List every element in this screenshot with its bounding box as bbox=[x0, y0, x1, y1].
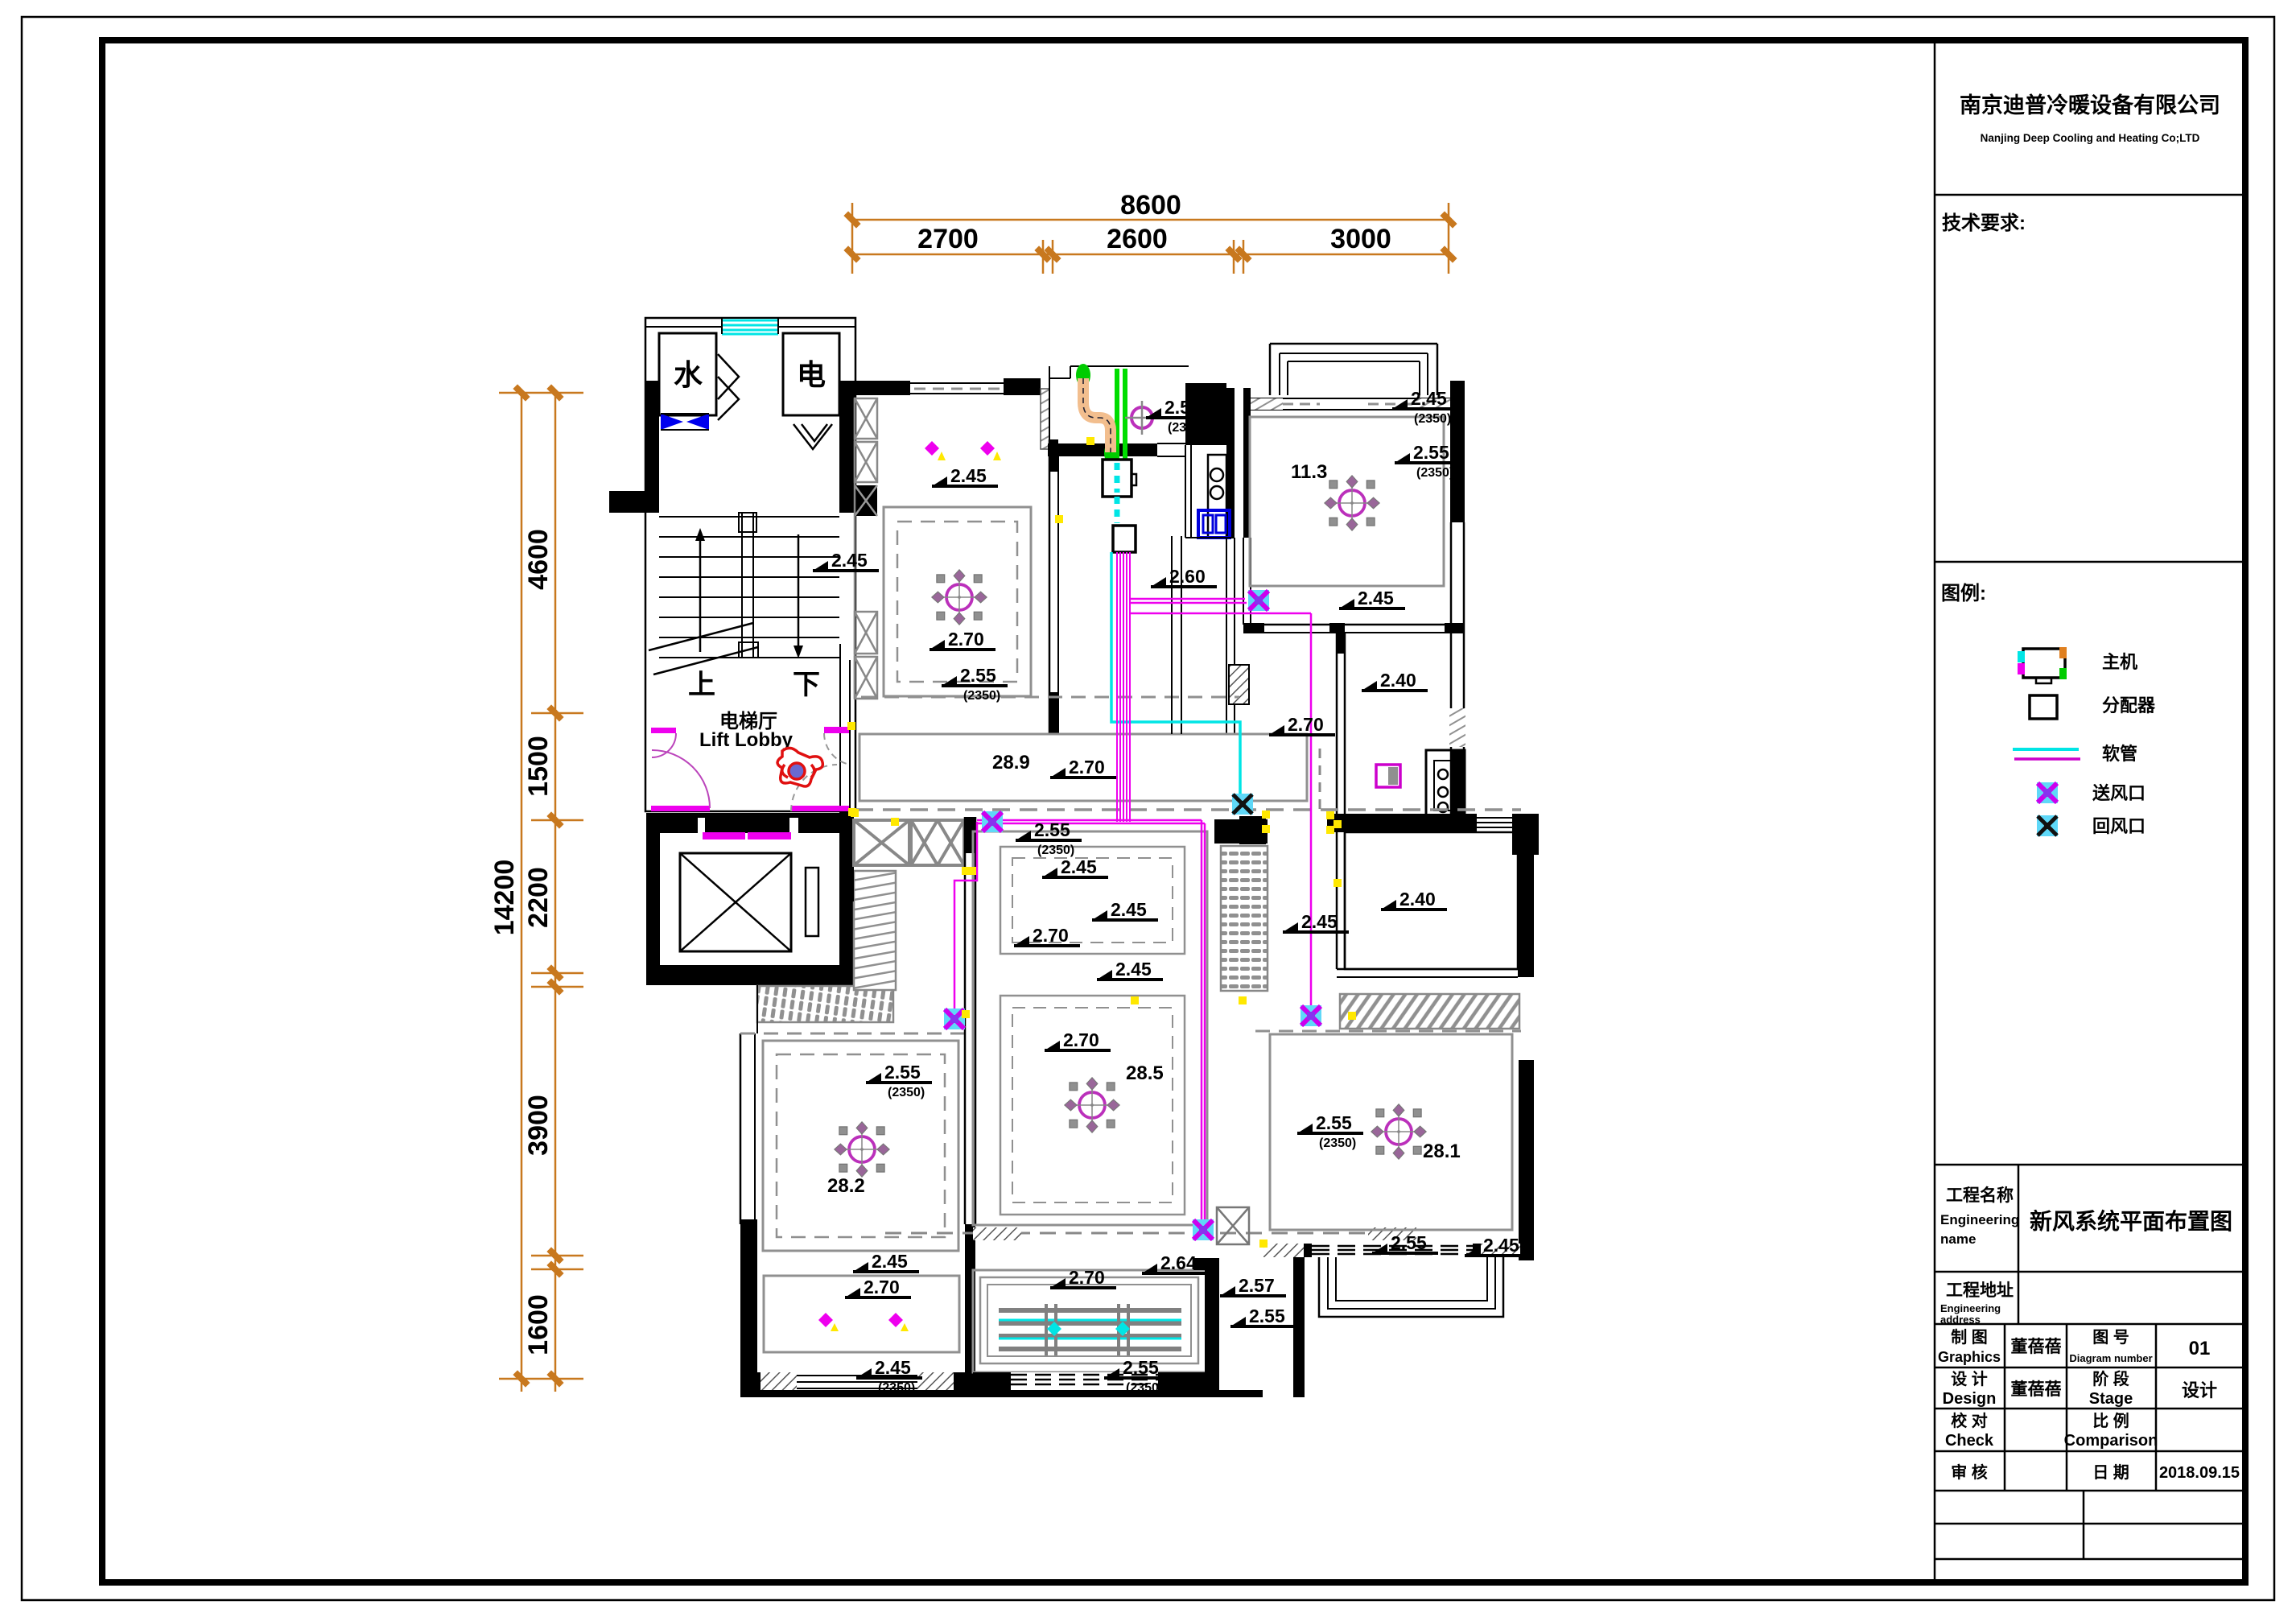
svg-text:董蓓蓓: 董蓓蓓 bbox=[2011, 1380, 2062, 1399]
svg-text:2.45: 2.45 bbox=[1115, 959, 1152, 980]
svg-text:2700: 2700 bbox=[917, 224, 979, 254]
svg-text:Engineering: Engineering bbox=[1940, 1302, 2001, 1314]
svg-text:日 期: 日 期 bbox=[2092, 1463, 2129, 1482]
svg-text:2.55: 2.55 bbox=[1123, 1357, 1159, 1378]
svg-text:2.45: 2.45 bbox=[1111, 899, 1147, 920]
svg-text:2.45: 2.45 bbox=[1483, 1235, 1519, 1256]
svg-text:3900: 3900 bbox=[523, 1095, 554, 1156]
svg-text:制 图: 制 图 bbox=[1951, 1328, 1988, 1347]
svg-text:2200: 2200 bbox=[523, 867, 554, 928]
svg-text:2.60: 2.60 bbox=[1169, 566, 1206, 587]
svg-text:新风系统平面布置图: 新风系统平面布置图 bbox=[2030, 1208, 2232, 1234]
svg-text:3000: 3000 bbox=[1330, 224, 1391, 254]
svg-text:(2350): (2350) bbox=[1126, 1381, 1163, 1395]
svg-text:2.55: 2.55 bbox=[960, 665, 996, 686]
svg-text:水: 水 bbox=[674, 358, 703, 391]
svg-text:28.2: 28.2 bbox=[827, 1175, 865, 1197]
svg-text:Design: Design bbox=[1943, 1390, 1997, 1408]
svg-text:(2350): (2350) bbox=[963, 689, 1000, 703]
svg-text:2.70: 2.70 bbox=[1033, 925, 1069, 946]
svg-text:审 核: 审 核 bbox=[1951, 1462, 1988, 1482]
svg-text:name: name bbox=[1940, 1231, 1976, 1247]
svg-text:(2350): (2350) bbox=[1168, 421, 1205, 435]
svg-text:2.55: 2.55 bbox=[884, 1062, 921, 1083]
svg-text:工程名称: 工程名称 bbox=[1946, 1186, 2014, 1205]
svg-text:Nanjing Deep Cooling and Heati: Nanjing Deep Cooling and Heating Co;LTD bbox=[1981, 132, 2200, 144]
svg-text:2.45: 2.45 bbox=[1358, 588, 1394, 608]
svg-text:28.1: 28.1 bbox=[1423, 1141, 1461, 1162]
svg-text:(2350): (2350) bbox=[1319, 1136, 1356, 1150]
svg-text:送风口: 送风口 bbox=[2092, 783, 2146, 803]
svg-text:2.70: 2.70 bbox=[864, 1277, 900, 1297]
svg-text:01: 01 bbox=[2189, 1338, 2211, 1359]
svg-text:2.40: 2.40 bbox=[1380, 670, 1416, 691]
svg-text:图例:: 图例: bbox=[1941, 583, 1986, 604]
svg-text:2.55: 2.55 bbox=[1413, 442, 1449, 463]
svg-text:2.45: 2.45 bbox=[872, 1251, 908, 1272]
svg-text:2.70: 2.70 bbox=[948, 629, 984, 650]
svg-text:2.45: 2.45 bbox=[1061, 856, 1097, 877]
svg-text:1600: 1600 bbox=[523, 1294, 554, 1355]
svg-text:图 号: 图 号 bbox=[2092, 1328, 2129, 1347]
svg-text:Check: Check bbox=[1945, 1432, 1994, 1450]
svg-text:2.70: 2.70 bbox=[1063, 1029, 1099, 1050]
svg-text:2.45: 2.45 bbox=[1411, 388, 1447, 409]
svg-text:设计: 设计 bbox=[2182, 1380, 2217, 1400]
svg-text:28.5: 28.5 bbox=[1126, 1062, 1164, 1084]
svg-text:2.45: 2.45 bbox=[950, 465, 987, 486]
svg-text:2.57: 2.57 bbox=[1239, 1275, 1275, 1296]
svg-text:电: 电 bbox=[797, 358, 826, 391]
svg-text:2.64: 2.64 bbox=[1160, 1252, 1197, 1273]
svg-text:南京迪普冷暖设备有限公司: 南京迪普冷暖设备有限公司 bbox=[1960, 93, 2220, 118]
svg-text:2.55: 2.55 bbox=[1164, 397, 1201, 418]
svg-text:2.55: 2.55 bbox=[1316, 1112, 1352, 1133]
svg-text:(2350): (2350) bbox=[1414, 412, 1451, 426]
svg-text:2.45: 2.45 bbox=[831, 550, 868, 571]
svg-text:设 计: 设 计 bbox=[1951, 1370, 1988, 1388]
svg-text:2600: 2600 bbox=[1107, 224, 1168, 254]
svg-text:下: 下 bbox=[793, 670, 820, 700]
svg-text:2.70: 2.70 bbox=[1069, 757, 1105, 778]
svg-text:董蓓蓓: 董蓓蓓 bbox=[2011, 1338, 2062, 1356]
svg-text:阶 段: 阶 段 bbox=[2092, 1369, 2129, 1388]
svg-text:2.55: 2.55 bbox=[1034, 819, 1070, 840]
svg-text:4600: 4600 bbox=[523, 529, 554, 590]
svg-text:(2350): (2350) bbox=[1416, 466, 1453, 480]
svg-text:2.70: 2.70 bbox=[1069, 1267, 1105, 1288]
svg-text:校 对: 校 对 bbox=[1951, 1411, 1988, 1430]
svg-text:28.9: 28.9 bbox=[992, 752, 1030, 773]
svg-text:2018.09.15: 2018.09.15 bbox=[2159, 1464, 2240, 1482]
svg-text:2.40: 2.40 bbox=[1399, 889, 1436, 910]
svg-text:Graphics: Graphics bbox=[1938, 1349, 2001, 1365]
svg-text:分配器: 分配器 bbox=[2102, 695, 2156, 716]
svg-text:(2350): (2350) bbox=[888, 1086, 925, 1099]
svg-text:Engineering: Engineering bbox=[1940, 1212, 2019, 1227]
svg-text:2.55: 2.55 bbox=[1391, 1232, 1427, 1253]
svg-text:11.3: 11.3 bbox=[1291, 461, 1327, 483]
svg-text:2.55: 2.55 bbox=[1249, 1306, 1285, 1326]
svg-text:2.45: 2.45 bbox=[1301, 911, 1338, 932]
svg-text:Stage: Stage bbox=[2089, 1390, 2133, 1408]
svg-text:8600: 8600 bbox=[1120, 190, 1181, 221]
svg-text:软管: 软管 bbox=[2102, 744, 2137, 764]
svg-text:技术要求:: 技术要求: bbox=[1942, 212, 2026, 234]
svg-text:回风口: 回风口 bbox=[2092, 816, 2146, 836]
svg-text:2.70: 2.70 bbox=[1288, 714, 1324, 735]
svg-text:上: 上 bbox=[688, 670, 715, 700]
svg-text:14200: 14200 bbox=[489, 860, 520, 936]
svg-text:1500: 1500 bbox=[523, 736, 554, 797]
svg-text:Comparison: Comparison bbox=[2064, 1432, 2158, 1450]
svg-text:2.45: 2.45 bbox=[875, 1357, 911, 1378]
svg-text:比 例: 比 例 bbox=[2092, 1411, 2129, 1430]
svg-text:(2350): (2350) bbox=[1037, 844, 1074, 857]
svg-text:主机: 主机 bbox=[2102, 652, 2137, 672]
svg-text:Diagram number: Diagram number bbox=[2069, 1352, 2152, 1364]
svg-text:工程地址: 工程地址 bbox=[1946, 1281, 2014, 1300]
svg-text:(2350): (2350) bbox=[878, 1381, 915, 1395]
svg-text:Lift Lobby: Lift Lobby bbox=[699, 729, 794, 751]
